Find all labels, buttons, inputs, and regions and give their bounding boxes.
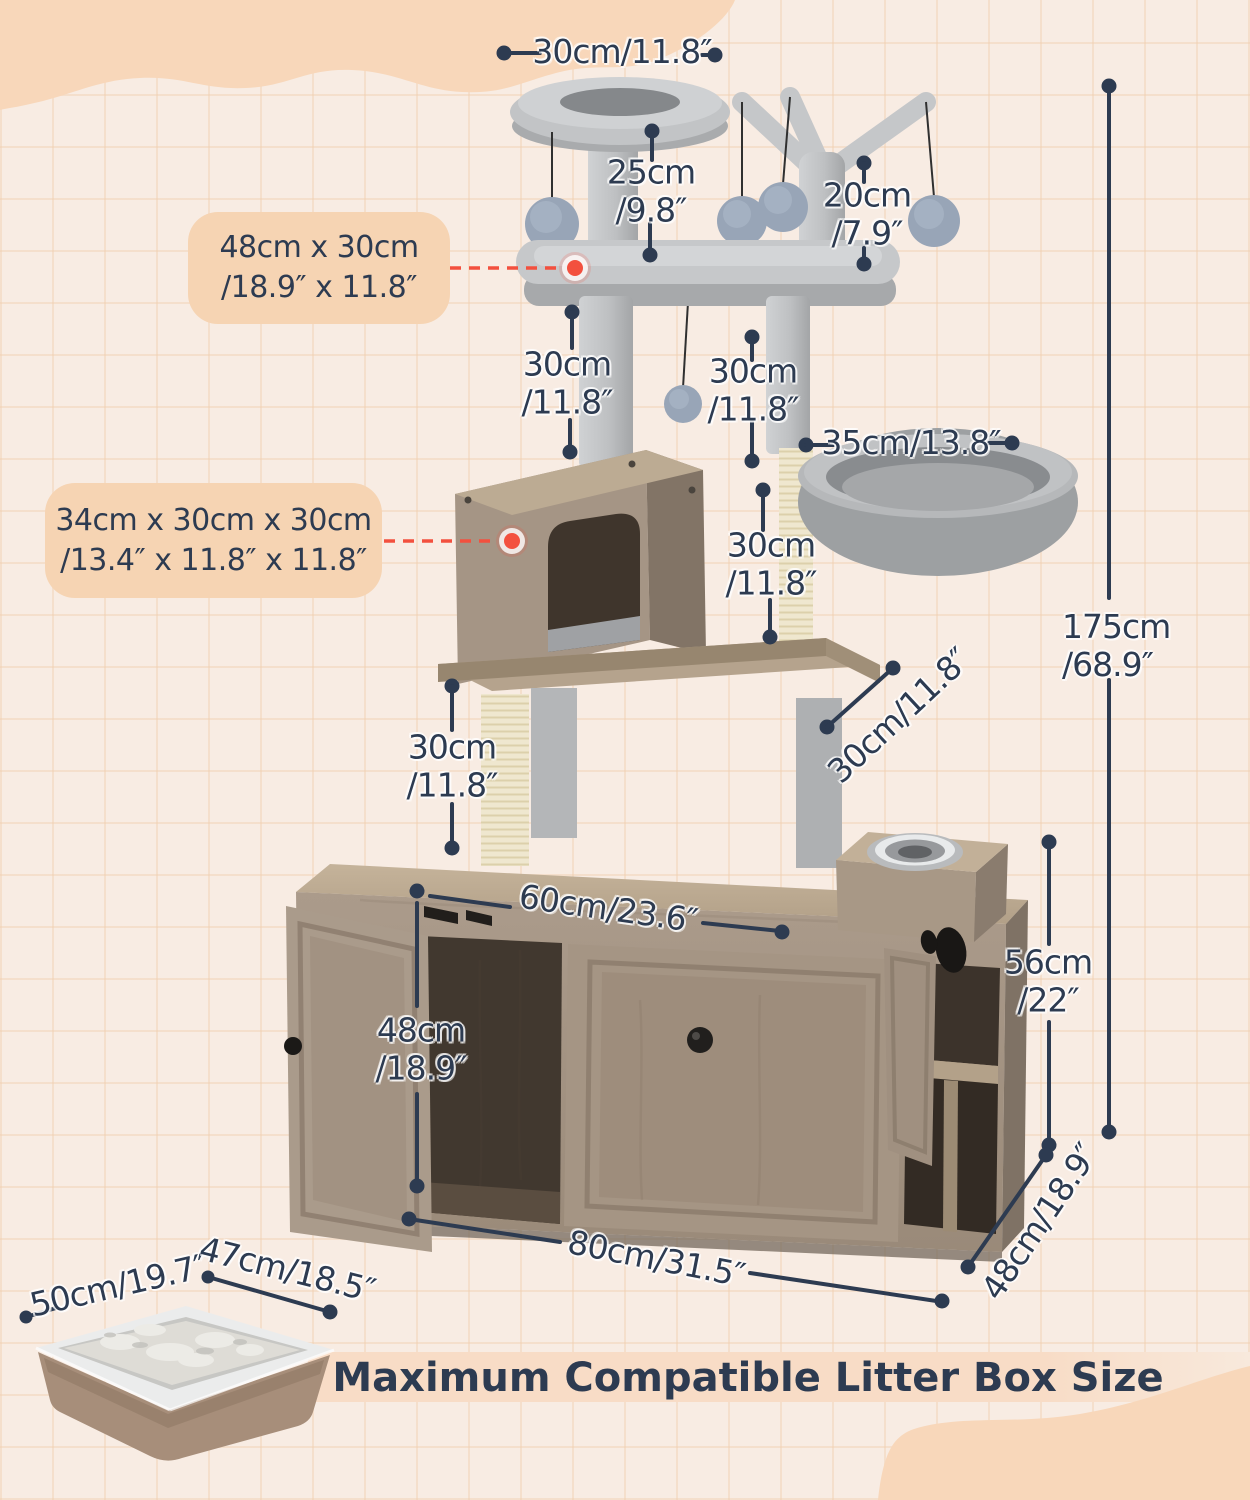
dim-right-post-height: 30cm /11.8″ xyxy=(708,353,799,430)
target-dot-bed xyxy=(559,252,591,284)
product-dimension-infographic: 48cm x 30cm /18.9″ x 11.8″ 34cm x 30cm x… xyxy=(0,0,1250,1500)
dim-branch-height: 20cm /7.9″ xyxy=(823,177,911,254)
dim-total-height: 175cm /68.9″ xyxy=(1062,608,1170,685)
dim-left-post-height: 30cm /11.8″ xyxy=(522,346,613,423)
dim-lower-post-height: 30cm /11.8″ xyxy=(407,729,498,806)
lower-gray-post xyxy=(531,688,577,838)
door-knob xyxy=(284,1037,302,1055)
door-knob xyxy=(687,1027,713,1053)
dim-inner-height: 48cm /18.9″ xyxy=(376,1012,467,1089)
litter-box-illustration xyxy=(36,1306,334,1461)
feeder-cube xyxy=(836,832,1008,942)
dim-top-post-height: 25cm /9.8″ xyxy=(607,154,695,231)
dim-cabinet-height: 56cm /22″ xyxy=(1004,944,1092,1021)
lower-right-post xyxy=(796,698,842,868)
dim-basket-post-height: 30cm /11.8″ xyxy=(726,527,817,604)
target-dot-condo xyxy=(496,525,528,557)
callout-condo-size: 34cm x 30cm x 30cm /13.4″ x 11.8″ x 11.8… xyxy=(45,483,382,598)
dim-top-perch-width: 30cm/11.8″ xyxy=(532,33,711,71)
callout-bed-size: 48cm x 30cm /18.9″ x 11.8″ xyxy=(188,212,450,324)
banner-title: Maximum Compatible Litter Box Size xyxy=(332,1355,1163,1401)
top-perch xyxy=(510,77,730,152)
dim-basket-width: 35cm/13.8″ xyxy=(821,424,1000,462)
